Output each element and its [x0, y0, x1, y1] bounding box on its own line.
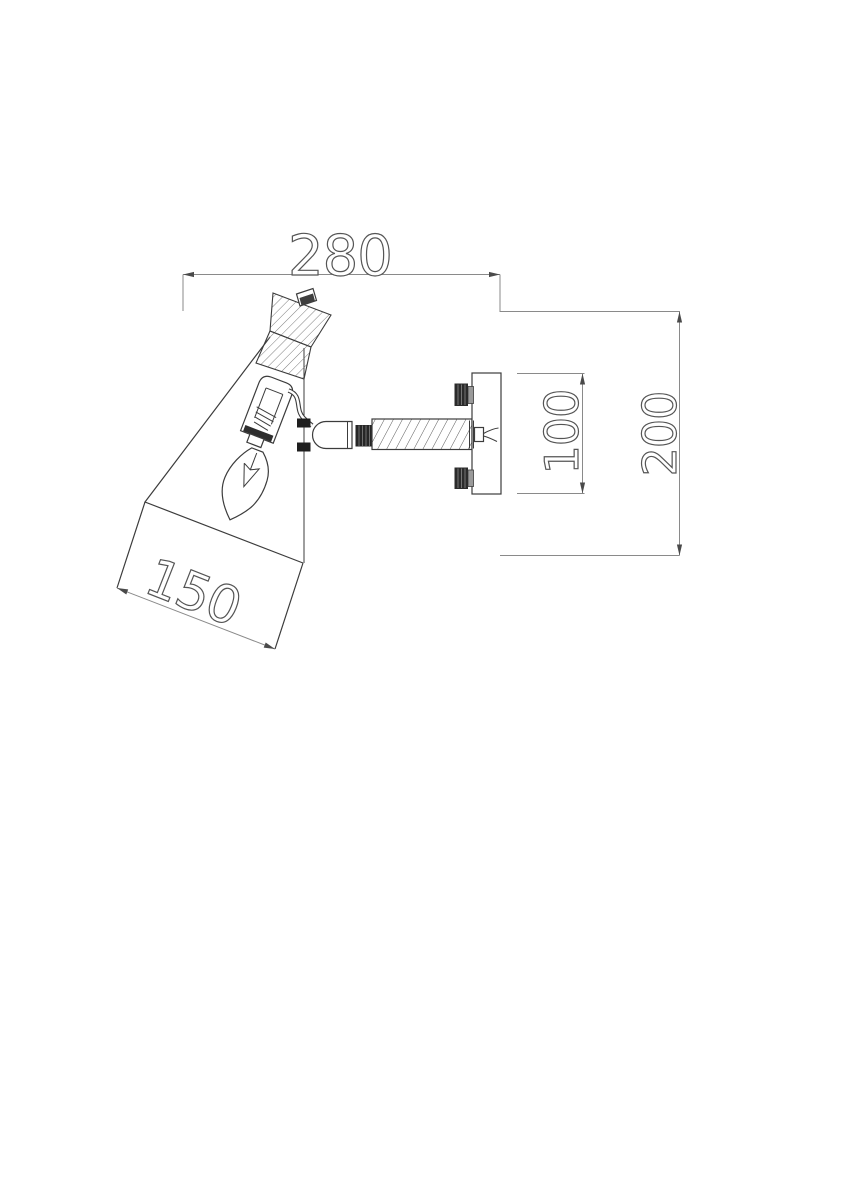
mounting-bolt-top [455, 384, 474, 407]
dimension-overall-height [500, 275, 682, 556]
technical-drawing-canvas [0, 0, 849, 1200]
shade-holder-section [256, 293, 331, 379]
swivel-knuckle [313, 422, 372, 449]
knurled-ring [356, 425, 373, 447]
light-bulb [211, 443, 276, 528]
holder-top-cap [297, 289, 317, 307]
dimension-overall-width [183, 272, 500, 311]
technical-drawing-page: 280 200 100 150 [0, 0, 849, 1200]
lamp-socket [238, 374, 296, 451]
dimension-plate-height [517, 374, 585, 494]
mounting-bolt-bottom [455, 468, 474, 490]
dimension-shade-opening [117, 588, 275, 649]
threaded-arm [372, 419, 472, 450]
